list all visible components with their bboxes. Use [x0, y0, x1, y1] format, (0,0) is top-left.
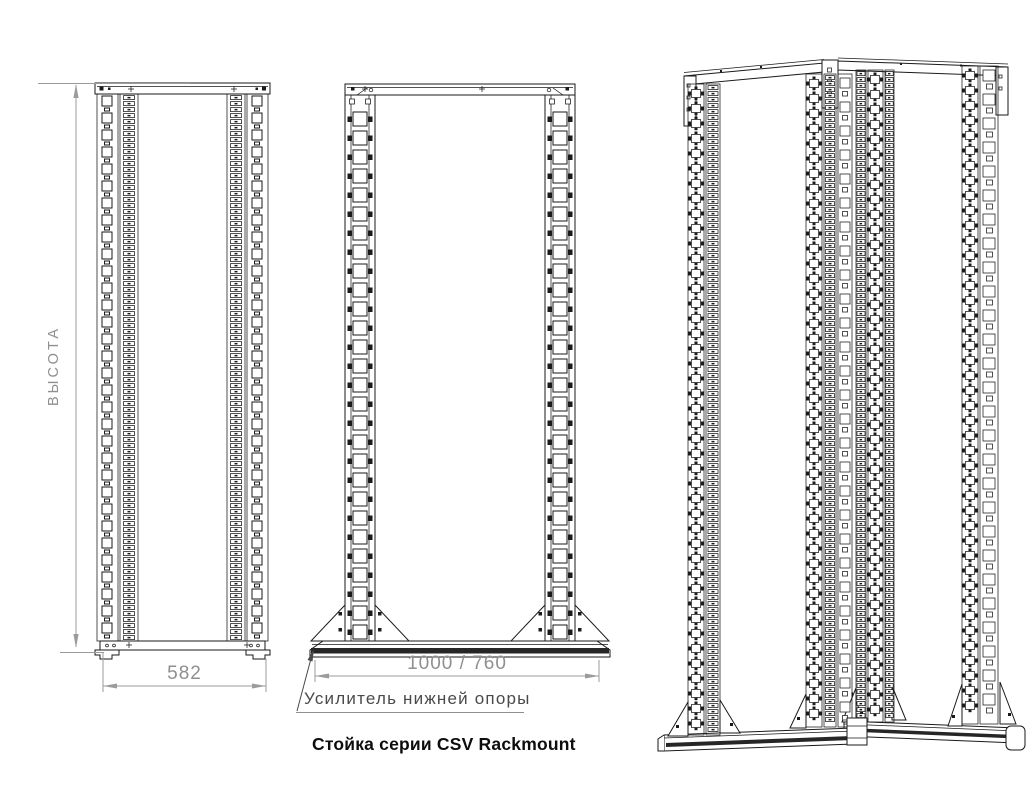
iso-left-end-plate: [684, 76, 696, 126]
iso-post2-side-holes: [826, 76, 835, 722]
side-view-right-foot: [246, 650, 270, 659]
base-length-dimension-value: 1000 / 760: [407, 653, 507, 674]
side-view-left-foot: [95, 650, 119, 659]
front-right-post-right-gusset: [575, 605, 609, 641]
width-dimension-value: 582: [167, 663, 202, 684]
front-right-post-left-gusset: [511, 605, 545, 641]
drawing-canvas: ВЫСОТА 582: [0, 0, 1035, 800]
iso-post2-left-gusset: [790, 694, 806, 728]
iso-front-base-end-step: [658, 735, 664, 751]
side-view-top-bar: [95, 83, 270, 94]
iso-post4-left-gusset: [948, 684, 962, 726]
side-right-inner-rail-holes: [231, 96, 242, 640]
isometric-view: [658, 58, 1025, 751]
side-view: [95, 83, 270, 659]
rack-technical-drawing: ВЫСОТА 582: [0, 0, 1035, 800]
iso-post1-right-gusset: [720, 700, 740, 733]
side-left-outer-rail-holes: [102, 96, 112, 638]
iso-post2-back-holes: [840, 78, 850, 720]
front-left-post-left-gusset: [311, 605, 345, 641]
iso-post3-right-holes: [886, 72, 893, 718]
drawing-caption: Стойка серии CSV Rackmount: [312, 734, 576, 754]
height-dimension-label: ВЫСОТА: [46, 326, 62, 406]
leader-note-text: Усилитель нижней опоры: [304, 689, 531, 708]
iso-post1-side-holes: [708, 86, 718, 732]
side-view-bottom-bar: [100, 641, 265, 650]
iso-post4-side-holes: [983, 70, 995, 713]
iso-post2-back-rail: [838, 74, 852, 727]
iso-post2-front-holes: [806, 77, 822, 721]
front-left-post-right-gusset: [375, 605, 409, 641]
width-dimension: 582: [103, 653, 266, 692]
iso-post4-front-holes: [962, 69, 978, 713]
iso-back-base-foot: [1006, 726, 1025, 750]
side-left-inner-rail-holes: [124, 96, 135, 640]
front-view: [310, 84, 610, 657]
iso-post1-front-holes: [688, 87, 704, 731]
iso-post1-left-gusset: [668, 702, 688, 736]
side-right-outer-rail-holes: [252, 96, 262, 638]
iso-post3-left-holes: [857, 72, 865, 718]
iso-post4-right-gusset: [1000, 682, 1016, 724]
front-view-top-bar: [345, 84, 575, 95]
height-dimension: ВЫСОТА: [38, 84, 190, 653]
iso-base-joint-block: [847, 718, 867, 745]
iso-post3-front-holes: [867, 73, 883, 717]
